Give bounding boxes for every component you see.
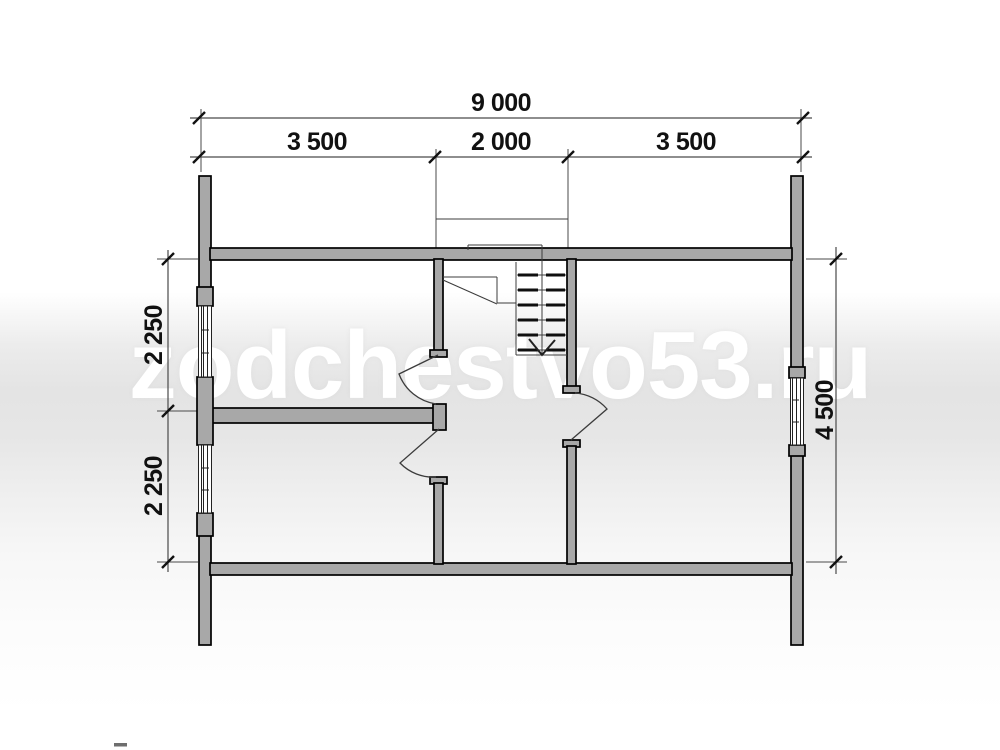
interior-wall-stair-left-upper [434,259,443,352]
exterior-wall-bottom [210,563,792,575]
dimension-lines [168,118,836,574]
dimension-label-left-segment-2: 2 250 [140,456,168,516]
door-jamb-cap [430,350,447,357]
interior-wall-horizontal [210,408,438,423]
dimension-label-overall-width: 9 000 [471,89,531,117]
walls [197,176,805,645]
interior-wall-right-lower [567,446,576,564]
interior-wall-left-lower [434,483,443,564]
door-swing-right-room [571,393,607,440]
door-swing-upper-left [399,355,438,404]
interior-wall-stair-right-upper [567,259,576,388]
dimension-label-top-segment-3: 3 500 [656,128,716,156]
window-jamb-block [197,377,213,445]
dimension-label-left-segment-1: 2 250 [140,305,168,365]
exterior-wall-top [210,248,792,260]
dimension-label-right-height: 4 500 [811,380,839,440]
window-jamb-block [789,445,805,456]
dimension-ticks [162,112,842,568]
staircase [436,219,568,355]
floor-plan-page: zodchestvo53.ru [0,0,1000,750]
window-jamb-block [197,287,213,306]
door-swing-lower-left [400,429,439,477]
page-mark [114,743,127,747]
dimension-label-top-segment-1: 3 500 [287,128,347,156]
door-jamb-cap [563,386,580,393]
extension-lines [157,109,847,562]
window-jamb-block [197,513,213,536]
dimension-label-top-segment-2: 2 000 [471,128,531,156]
window-left-2 [199,445,212,513]
window-left-1 [199,306,212,377]
stair-break-line [443,277,516,304]
dimension-labels: 9 000 3 500 2 000 3 500 2 250 2 250 4 50… [140,89,839,516]
floor-plan-drawing: 9 000 3 500 2 000 3 500 2 250 2 250 4 50… [0,0,1000,750]
window-jamb-block [789,367,805,378]
window-right [791,378,804,445]
door-jamb-cap [433,404,446,430]
